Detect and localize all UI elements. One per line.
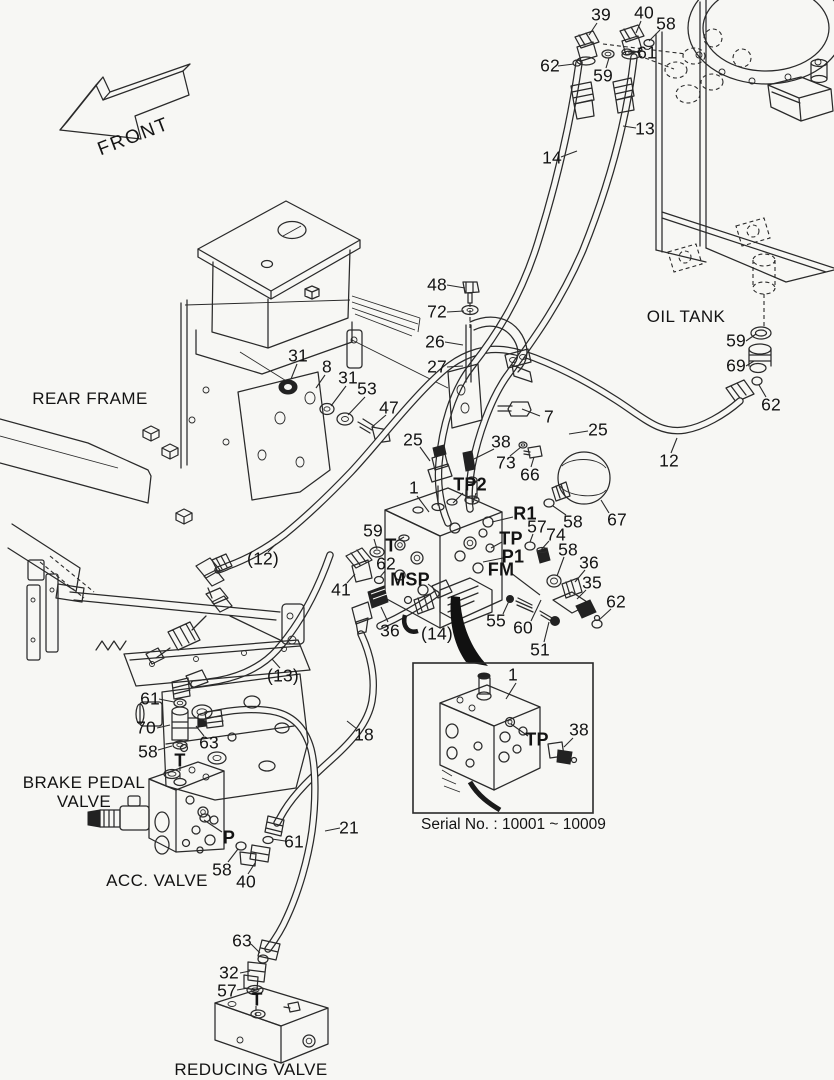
leader-line: [347, 574, 355, 583]
leader-line: [531, 600, 541, 621]
leader-line: [503, 601, 509, 614]
leader-line: [380, 571, 385, 577]
reducing-valve-drawing: [215, 940, 328, 1063]
leader-line: [291, 364, 297, 379]
leader-line: [671, 438, 677, 453]
leader-line: [569, 431, 588, 434]
front-arrow: FRONT: [60, 64, 190, 160]
top-fittings: [571, 25, 654, 119]
leader-line: [420, 447, 430, 461]
leader-line: [228, 849, 238, 862]
leader-line: [381, 607, 388, 622]
leader-line: [251, 944, 260, 953]
oil-tank-drawing: [603, 0, 834, 402]
leader-line: [453, 493, 463, 503]
leader-line: [589, 23, 597, 35]
leader-line: [601, 500, 609, 513]
leader-line: [759, 385, 766, 397]
leader-line: [636, 21, 641, 33]
leader-line: [204, 820, 222, 832]
leader-line: [599, 609, 611, 620]
front-arrow-label: FRONT: [95, 114, 173, 161]
leader-line: [531, 457, 534, 467]
leader-line: [553, 506, 566, 515]
leader-line: [325, 828, 340, 831]
leader-line: [606, 58, 609, 68]
leader-line: [445, 342, 463, 345]
leader-line: [347, 721, 357, 729]
leader-line: [649, 30, 660, 41]
rear-frame-drawing: [0, 201, 448, 592]
leader-line: [511, 573, 540, 595]
leader-line: [316, 375, 325, 388]
leader-line: [372, 415, 386, 427]
main-valve-block: [385, 442, 542, 666]
leader-line: [348, 397, 365, 415]
parts-diagram-page: FRONT: [0, 0, 834, 1080]
leader-line: [272, 659, 280, 668]
diagram-artwork: FRONT: [0, 0, 834, 1080]
valve-right-parts: [507, 452, 611, 628]
leader-line: [331, 386, 346, 406]
inset-box: [413, 663, 593, 813]
leader-line: [558, 64, 574, 66]
leader-line: [159, 699, 174, 702]
leader-line: [511, 724, 528, 736]
leader-line: [447, 311, 464, 312]
brake-pedal-valve-drawing: [27, 556, 310, 800]
leader-line: [196, 726, 204, 736]
leader-line: [237, 988, 248, 990]
leader-line: [483, 558, 503, 562]
leader-line: [510, 447, 521, 456]
leader-line: [530, 534, 533, 542]
leader-line: [544, 622, 549, 642]
leader-lines: [157, 21, 766, 990]
leader-line: [564, 738, 573, 747]
leader-line: [272, 839, 285, 841]
leader-line: [575, 570, 585, 582]
leader-line: [447, 285, 465, 288]
acc-valve-drawing: [88, 762, 224, 854]
leader-line: [557, 557, 564, 576]
